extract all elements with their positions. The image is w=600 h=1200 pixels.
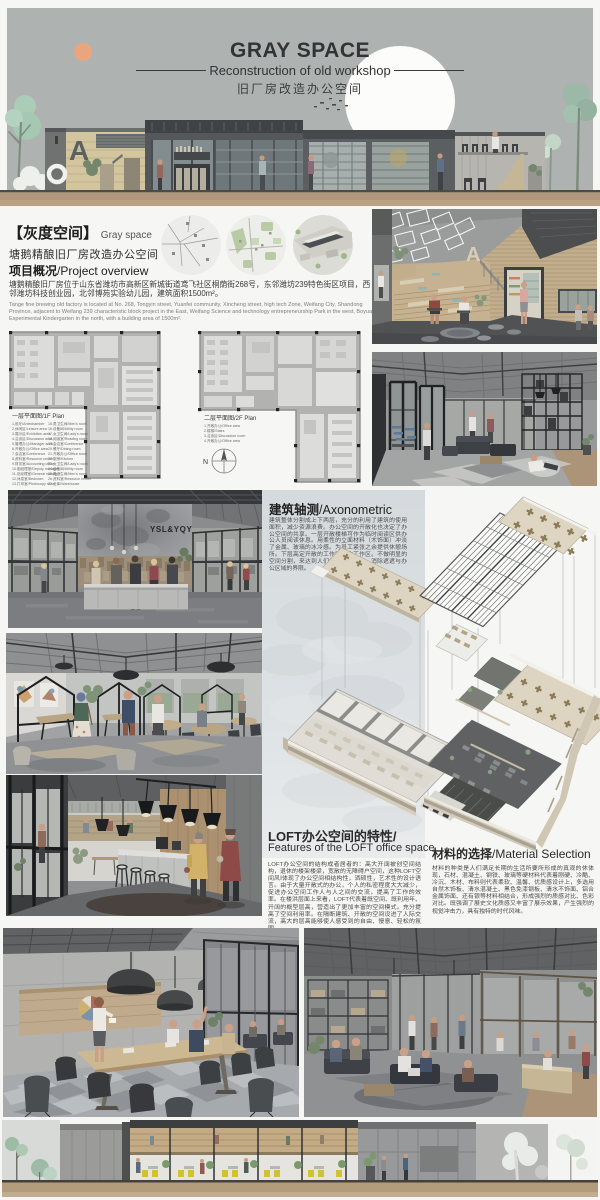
svg-text:27.仓库/Warehouse: 27.仓库/Warehouse xyxy=(48,481,79,486)
svg-text:3.洽谈区/Discussion room: 3.洽谈区/Discussion room xyxy=(204,433,245,438)
svg-text:7.会议室/Conference: 7.会议室/Conference xyxy=(12,451,45,456)
svg-text:25.男卫生间/Men's room: 25.男卫生间/Men's room xyxy=(48,471,87,476)
svg-text:18.阅读室/Reading room: 18.阅读室/Reading room xyxy=(48,436,87,441)
svg-text:24.设备间/Utility room: 24.设备间/Utility room xyxy=(48,466,83,471)
svg-text:20.餐厅/Dining room: 20.餐厅/Dining room xyxy=(48,446,81,451)
svg-text:4.开敞办公/Office area: 4.开敞办公/Office area xyxy=(204,438,240,443)
svg-text:17.女卫生间/Lady's room: 17.女卫生间/Lady's room xyxy=(48,431,88,436)
svg-text:2.楼梯/Stairs: 2.楼梯/Stairs xyxy=(204,428,225,433)
svg-text:2.休闲区/Leisure area: 2.休闲区/Leisure area xyxy=(12,426,47,431)
svg-text:26.资料室/Resource center: 26.资料室/Resource center xyxy=(48,476,92,481)
svg-text:3.展示区/Exhibition area: 3.展示区/Exhibition area xyxy=(12,431,51,436)
svg-text:22.厨房/Kitchen: 22.厨房/Kitchen xyxy=(48,456,73,461)
svg-text:1.前厅/Antechamber: 1.前厅/Antechamber xyxy=(12,421,45,426)
svg-text:N: N xyxy=(203,459,208,466)
svg-text:16.设备间/Utility room: 16.设备间/Utility room xyxy=(48,426,83,431)
svg-text:19.会议室/Conference: 19.会议室/Conference xyxy=(48,441,83,446)
svg-text:5.管理办公/Manager area: 5.管理办公/Manager area xyxy=(12,441,53,446)
svg-text:一层平面图/1F Plan: 一层平面图/1F Plan xyxy=(12,413,64,420)
svg-text:1.开敞办公/Office area: 1.开敞办公/Office area xyxy=(204,423,240,428)
svg-text:4.洽谈区/Discussion area: 4.洽谈区/Discussion area xyxy=(12,436,52,441)
svg-text:15.男卫生间/Men's room: 15.男卫生间/Men's room xyxy=(48,421,87,426)
svg-text:12.休息室/Bedroom: 12.休息室/Bedroom xyxy=(12,476,43,481)
svg-text:YSL&YQY: YSL&YQY xyxy=(150,525,192,534)
svg-text:A: A xyxy=(466,244,480,266)
svg-text:二层平面图/2F Plan: 二层平面图/2F Plan xyxy=(204,415,256,422)
svg-text:6.开敞办公/Office area: 6.开敞办公/Office area xyxy=(12,446,48,451)
svg-text:21.开敞办公/Office room: 21.开敞办公/Office room xyxy=(48,451,87,456)
svg-text:23.女卫生间/Lady's room: 23.女卫生间/Lady's room xyxy=(48,461,88,466)
